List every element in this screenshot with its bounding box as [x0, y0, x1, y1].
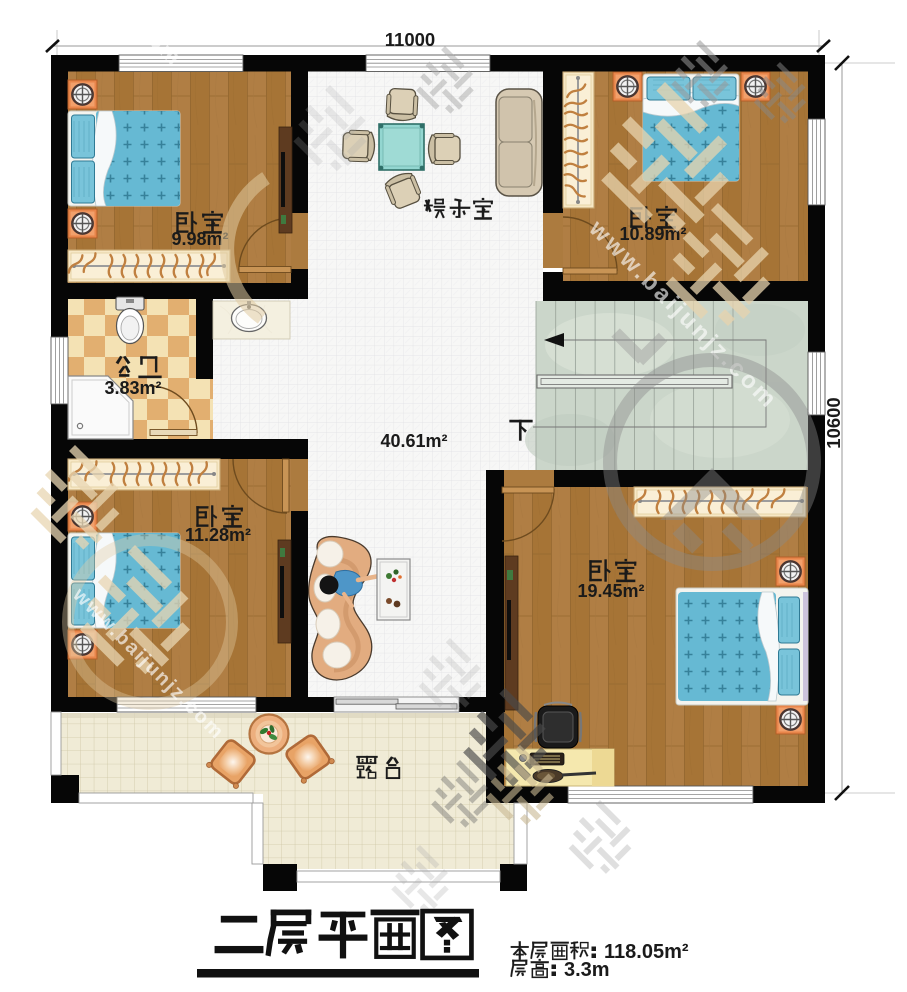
- svg-text:3.83m²: 3.83m²: [104, 378, 161, 398]
- svg-text:118.05m²: 118.05m²: [604, 941, 689, 963]
- svg-text:11.28m²: 11.28m²: [185, 525, 251, 545]
- svg-text:19.45m²: 19.45m²: [577, 581, 644, 601]
- svg-text:40.61m²: 40.61m²: [380, 431, 447, 451]
- svg-text:9.98m²: 9.98m²: [171, 229, 228, 249]
- svg-text:3.3m: 3.3m: [564, 959, 610, 981]
- svg-text:11000: 11000: [385, 29, 435, 50]
- svg-text:10600: 10600: [823, 397, 844, 448]
